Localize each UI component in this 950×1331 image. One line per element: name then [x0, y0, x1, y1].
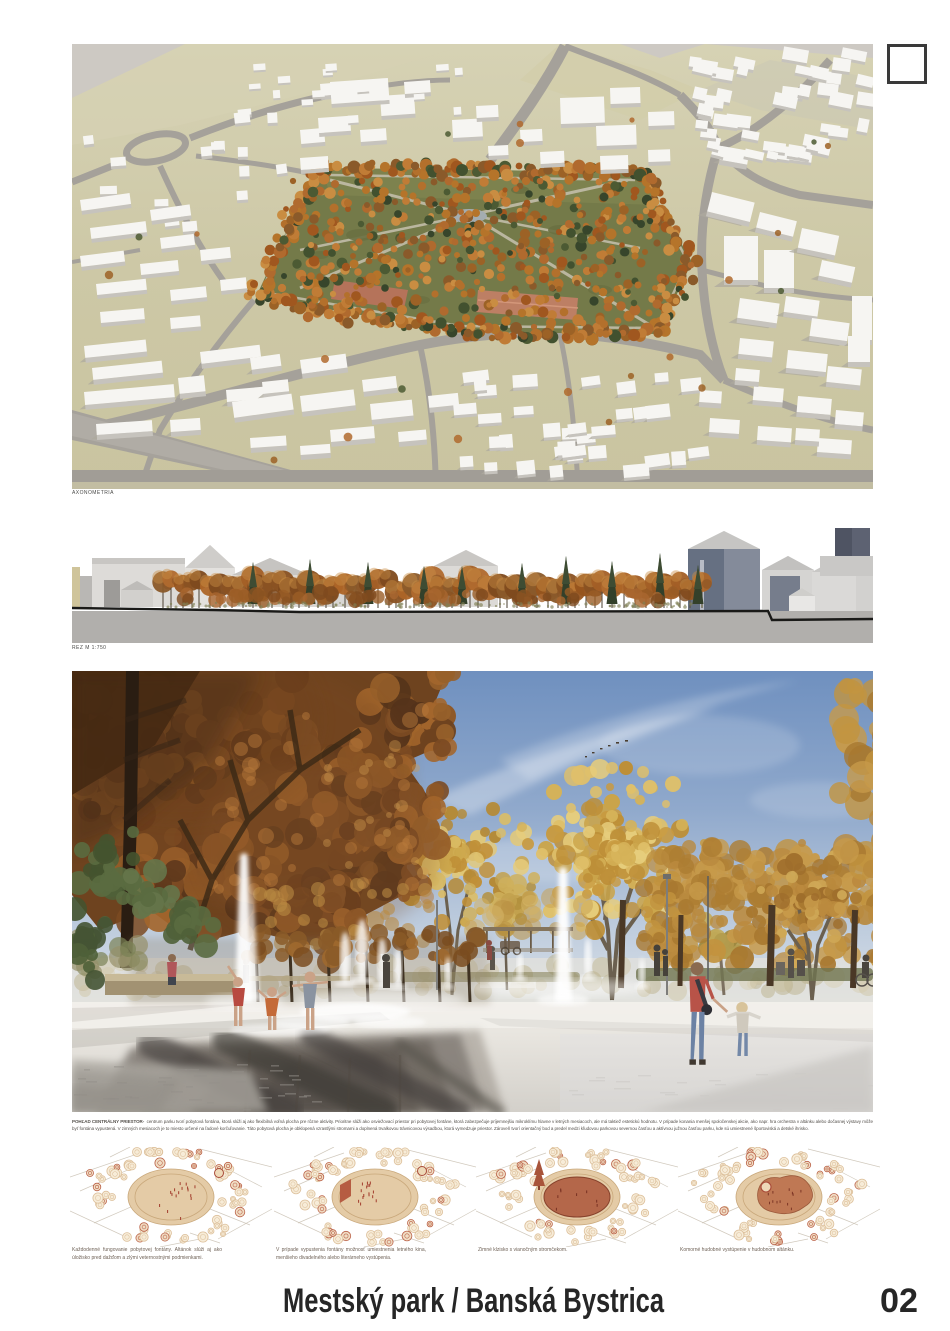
svg-text:02: 02	[880, 1282, 918, 1320]
svg-text:Mestský park / Banská Bystrica: Mestský park / Banská Bystrica	[283, 1282, 665, 1320]
